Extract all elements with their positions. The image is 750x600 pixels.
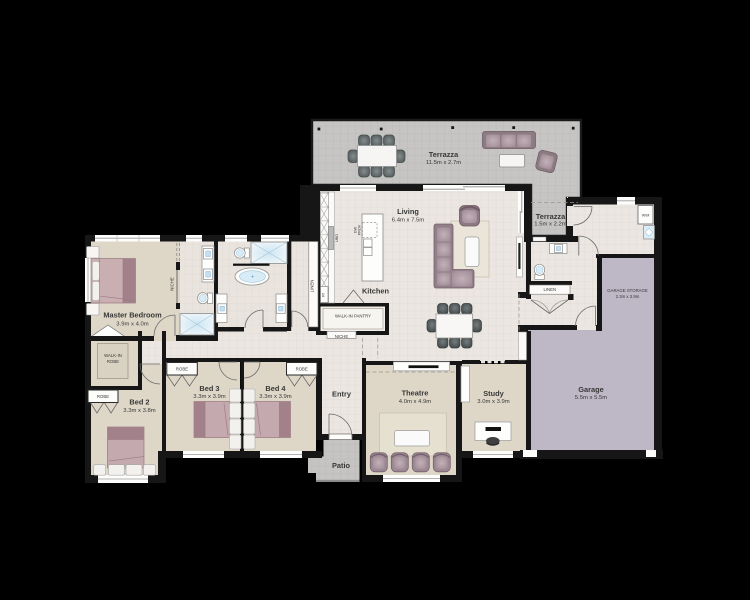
svg-text:Terrazza: Terrazza	[429, 150, 459, 159]
svg-text:WALK-IN: WALK-IN	[104, 353, 122, 358]
svg-text:LINEN: LINEN	[310, 280, 315, 293]
svg-text:3.3m x 3.9m: 3.3m x 3.9m	[193, 394, 226, 400]
svg-text:3.0m x 3.9m: 3.0m x 3.9m	[477, 399, 510, 405]
svg-text:ROBE: ROBE	[296, 367, 308, 372]
svg-text:Master Bedroom: Master Bedroom	[103, 311, 162, 320]
svg-text:4.0m x 4.9m: 4.0m x 4.9m	[399, 399, 432, 405]
svg-text:Living: Living	[397, 207, 419, 216]
svg-text:NICHE: NICHE	[170, 277, 175, 291]
svg-text:Theatre: Theatre	[402, 389, 429, 398]
svg-text:GARAGE STORAGE: GARAGE STORAGE	[607, 288, 648, 293]
svg-text:PROV: PROV	[358, 224, 362, 235]
svg-text:ROBE: ROBE	[176, 367, 188, 372]
svg-text:W/M: W/M	[642, 214, 650, 218]
svg-text:11.5m x 2.7m: 11.5m x 2.7m	[426, 160, 461, 166]
svg-text:LINEN: LINEN	[543, 287, 556, 292]
svg-text:Garage: Garage	[578, 385, 603, 394]
svg-text:Bed 3: Bed 3	[199, 384, 219, 393]
svg-text:5.5m x 5.5m: 5.5m x 5.5m	[575, 395, 608, 401]
svg-text:1.5m x 2.2m: 1.5m x 2.2m	[534, 222, 567, 228]
svg-text:Terrazza: Terrazza	[536, 212, 566, 221]
svg-text:Patio: Patio	[332, 461, 351, 470]
svg-text:3.3m x 3.8m: 3.3m x 3.8m	[123, 408, 156, 414]
svg-text:6.4m x 7.5m: 6.4m x 7.5m	[392, 217, 425, 223]
svg-text:3.9m x 4.0m: 3.9m x 4.0m	[116, 321, 149, 327]
svg-text:ROBE: ROBE	[107, 359, 119, 364]
svg-text:Kitchen: Kitchen	[362, 287, 390, 296]
svg-text:Study: Study	[483, 389, 504, 398]
svg-text:UBO: UBO	[335, 234, 339, 242]
svg-text:WALK-IN PANTRY: WALK-IN PANTRY	[335, 314, 371, 319]
svg-text:Bed 2: Bed 2	[129, 398, 149, 407]
svg-text:Bed 4: Bed 4	[265, 384, 286, 393]
svg-text:2.3m x 3.9m: 2.3m x 3.9m	[616, 294, 640, 299]
svg-text:Entry: Entry	[332, 390, 352, 399]
svg-text:NICHE: NICHE	[335, 334, 349, 339]
svg-text:ROBE: ROBE	[97, 394, 109, 399]
svg-text:3.3m x 3.9m: 3.3m x 3.9m	[259, 394, 292, 400]
